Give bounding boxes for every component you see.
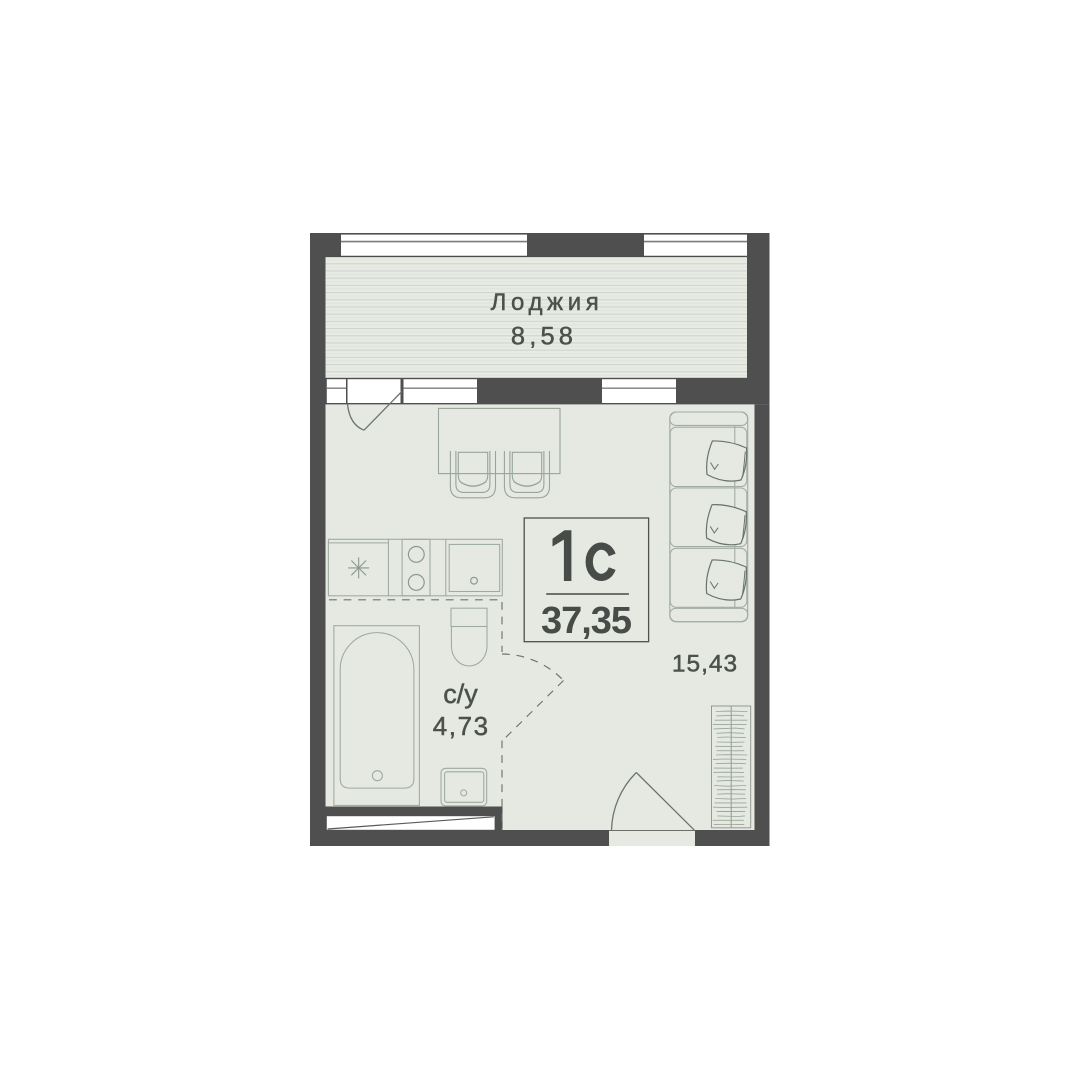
svg-text:с/у: с/у bbox=[443, 679, 478, 709]
svg-text:8,58: 8,58 bbox=[511, 323, 577, 351]
svg-text:Лоджия: Лоджия bbox=[491, 289, 604, 316]
svg-text:4,73: 4,73 bbox=[433, 711, 490, 741]
svg-text:15,43: 15,43 bbox=[672, 651, 738, 678]
svg-text:37,35: 37,35 bbox=[541, 600, 632, 642]
